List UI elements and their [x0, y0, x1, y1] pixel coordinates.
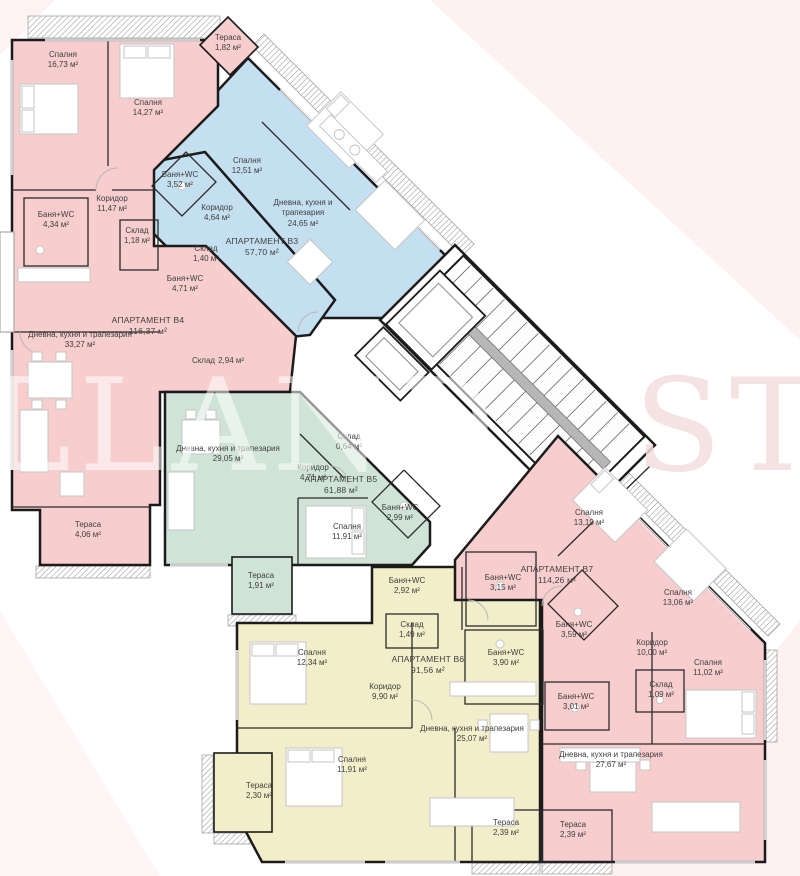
room-label: Тераса2,39 м²: [560, 820, 586, 841]
room-label: Дневна, кухня и трапезария25,07 м²: [420, 724, 524, 745]
room-label: Склад0,64 м²: [336, 432, 362, 453]
room-label: Склад2,94 м²: [190, 356, 245, 366]
apartment-name: АПАРТАМЕНТ В3: [226, 236, 299, 247]
room-label: Склад1,40 м²: [193, 244, 219, 265]
room-label: Баня+WC3,52 м²: [162, 170, 198, 191]
room-label: Коридор4,71 м²: [297, 463, 329, 484]
room-label: Коридор9,90 м²: [369, 682, 401, 703]
room-label: Склад1,49 м²: [399, 620, 425, 641]
room-label: Дневна, кухня и трапезария33,27 м²: [28, 330, 132, 351]
room-label: Баня+WC2,99 м²: [382, 503, 418, 524]
room-label: Тераса2,30 м²: [246, 781, 272, 802]
room-label: Коридор4,64 м²: [201, 203, 233, 224]
room-label: Дневна, кухня и трапезария27,67 м²: [559, 750, 663, 771]
apartment-title-b3: АПАРТАМЕНТ В3 57,70 м²: [226, 236, 299, 258]
room-label: Тераса1,82 м²: [215, 33, 241, 54]
apartment-area: 61,88 м²: [305, 485, 378, 496]
room-label: Склад1,09 м²: [648, 680, 674, 701]
apartment-area: 57,70 м²: [226, 247, 299, 258]
room-label: Баня+WC4,71 м²: [167, 274, 203, 295]
room-label: Спалня12,34 м²: [297, 648, 327, 669]
apartment-name: АПАРТАМЕНТ В4: [112, 315, 185, 326]
room-label: Склад1,18 м²: [124, 226, 150, 247]
room-label: Спалня13,19 м²: [574, 508, 604, 529]
room-label: Тераса2,39 м²: [493, 818, 519, 839]
room-label: Коридор11,47 м²: [96, 194, 128, 215]
room-label: Баня+WC3,59 м²: [556, 620, 592, 641]
room-label: Дневна, кухня и трапезария29,05 м²: [176, 444, 280, 465]
floor-plan: [0, 0, 800, 876]
room-label: Баня+WC3,90 м²: [488, 648, 524, 669]
apartment-area: 114,26 м²: [521, 575, 594, 586]
floor-plan-page: АПАРТАМЕНТ В3 57,70 м² Спалня12,51 м² Ба…: [0, 0, 800, 876]
room-label: Спалня11,91 м²: [337, 755, 367, 776]
room-label: Тераса1,91 м²: [248, 571, 274, 592]
room-label: Спалня13,06 м²: [663, 588, 693, 609]
room-label: Спалня14,27 м²: [133, 98, 163, 119]
room-label: Спалня11,02 м²: [693, 658, 723, 679]
room-label: Баня+WC3,15 м²: [485, 573, 521, 594]
room-label: Спалня12,51 м²: [232, 156, 262, 177]
apartment-title-b6: АПАРТАМЕНТ В6 91,56 м²: [392, 654, 465, 676]
room-label: Тераса4,06 м²: [75, 520, 101, 541]
kitchen-fixtures-column: [0, 232, 14, 332]
apartment-title-b7: АПАРТАМЕНТ В7 114,26 м²: [521, 564, 594, 586]
apartment-name: АПАРТАМЕНТ В7: [521, 564, 594, 575]
apartment-name: АПАРТАМЕНТ В6: [392, 654, 465, 665]
room-label: Баня+WC3,01 м²: [558, 692, 594, 713]
room-label: Спалня11,91 м²: [332, 522, 362, 543]
apartment-area: 91,56 м²: [392, 665, 465, 676]
room-label: Дневна, кухня и трапезария24,65 м²: [262, 198, 344, 229]
room-label: Баня+WC4,34 м²: [38, 210, 74, 231]
background-tint: [0, 610, 160, 876]
room-label: Баня+WC2,92 м²: [389, 576, 425, 597]
room-label: Коридор10,00 м²: [636, 638, 668, 659]
room-label: Спалня16,73 м²: [48, 50, 78, 71]
